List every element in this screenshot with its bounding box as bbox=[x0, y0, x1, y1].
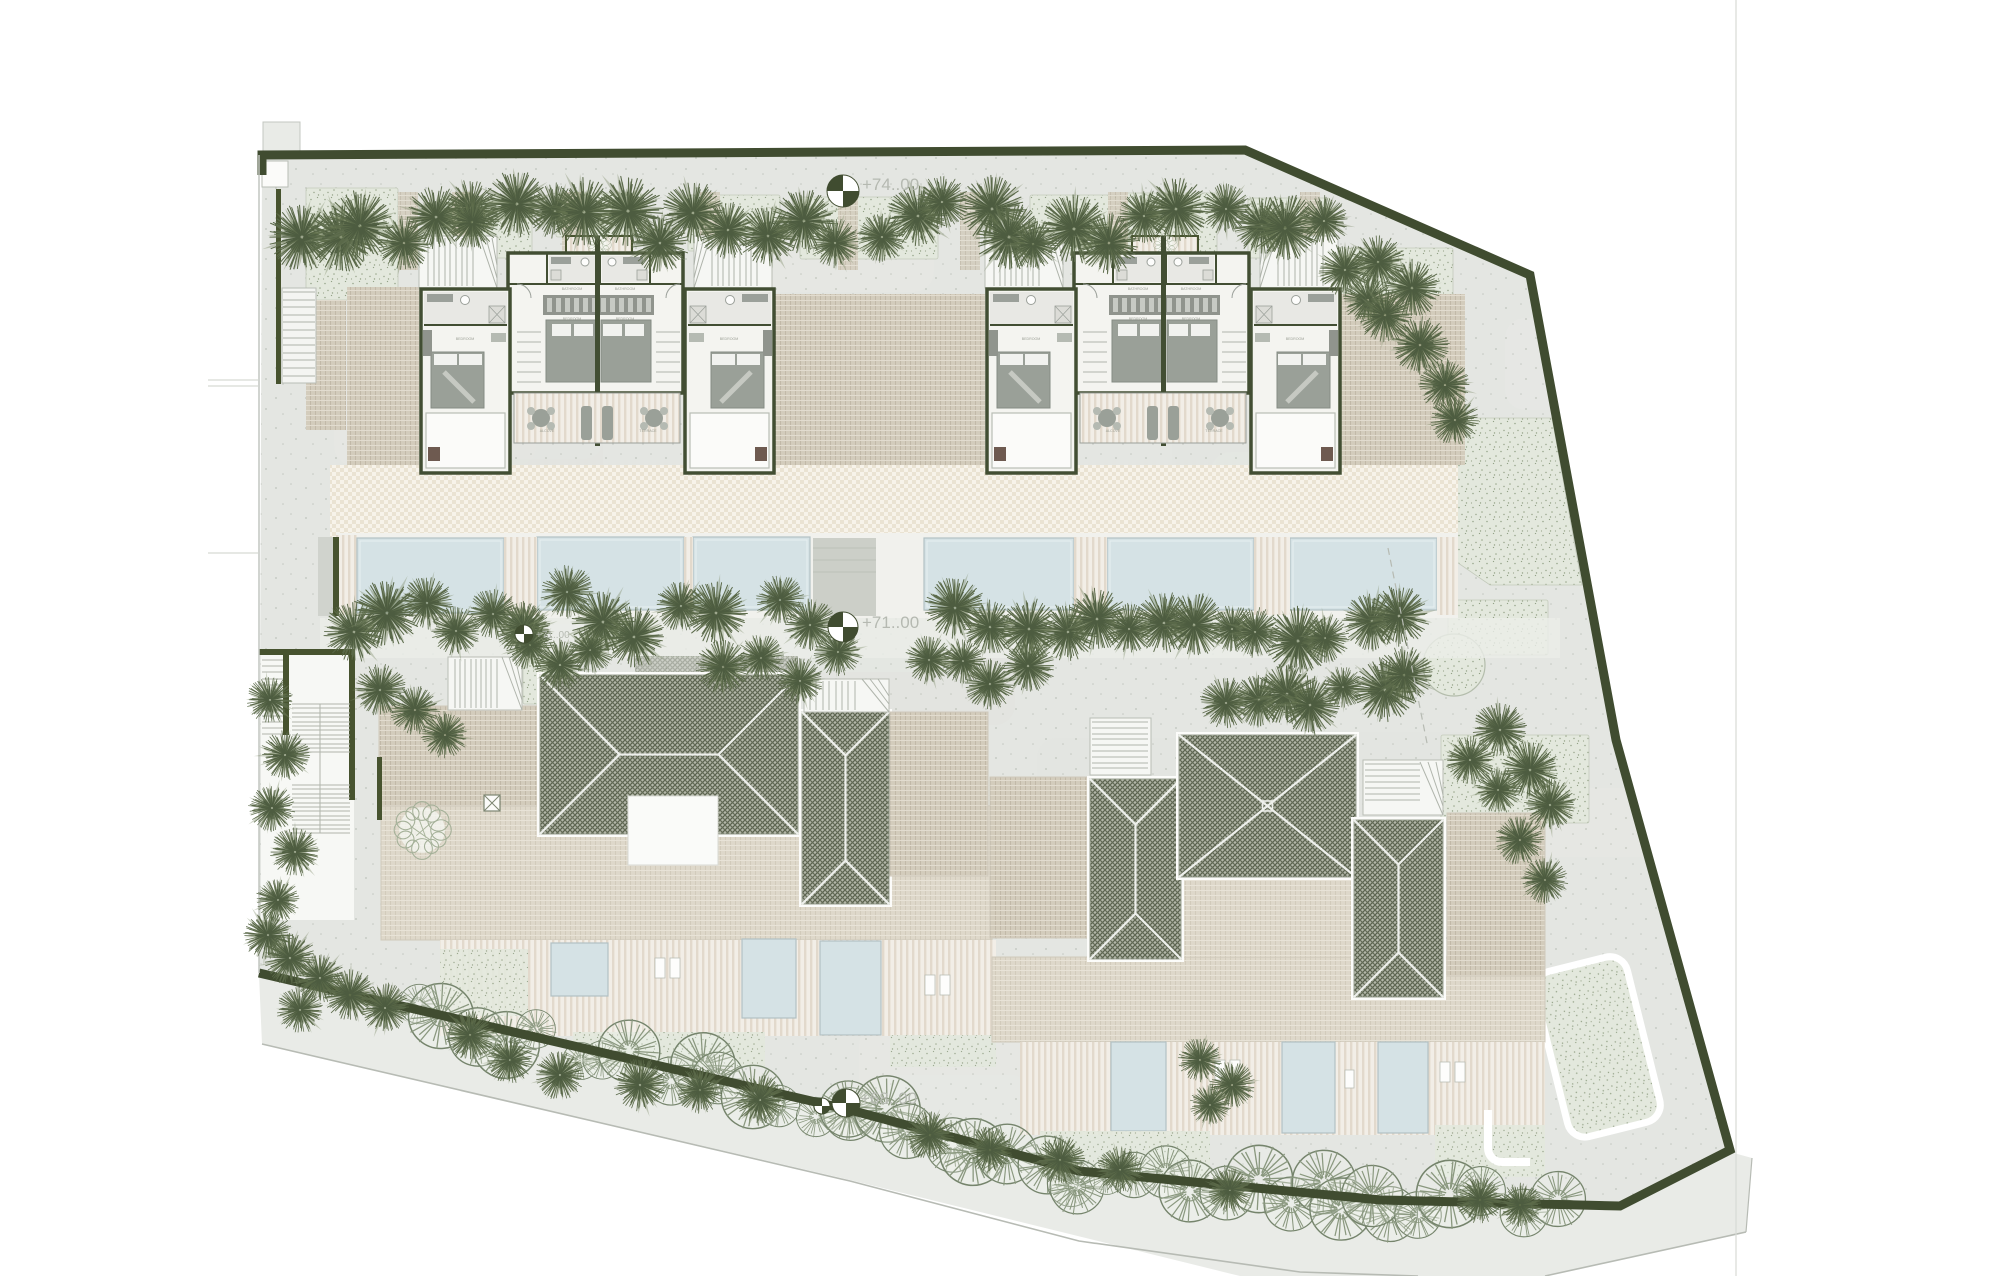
svg-text:BATHROOM: BATHROOM bbox=[1128, 287, 1149, 291]
svg-text:BEDROOM: BEDROOM bbox=[563, 317, 582, 321]
svg-text:BATHROOM: BATHROOM bbox=[562, 287, 583, 291]
svg-text:BEDROOM: BEDROOM bbox=[616, 317, 635, 321]
svg-text:ALCOVE: ALCOVE bbox=[1106, 429, 1121, 433]
svg-text:BEDROOM: BEDROOM bbox=[1129, 317, 1148, 321]
svg-text:ALCOVE: ALCOVE bbox=[540, 429, 555, 433]
svg-text:BATHROOM: BATHROOM bbox=[615, 287, 636, 291]
svg-text:TERRACE: TERRACE bbox=[639, 429, 657, 433]
svg-text:BEDROOM: BEDROOM bbox=[456, 337, 475, 341]
svg-text:+74..00: +74..00 bbox=[862, 175, 919, 194]
svg-text:BEDROOM: BEDROOM bbox=[1182, 317, 1201, 321]
svg-text:BEDROOM: BEDROOM bbox=[720, 337, 739, 341]
svg-text:+68..00: +68..00 bbox=[860, 1089, 917, 1108]
svg-text:BATHROOM: BATHROOM bbox=[1181, 287, 1202, 291]
svg-text:BEDROOM: BEDROOM bbox=[1022, 337, 1041, 341]
svg-text:TERRACE: TERRACE bbox=[1205, 429, 1223, 433]
svg-text:+71..00: +71..00 bbox=[862, 613, 919, 632]
svg-text:+71..00: +71..00 bbox=[536, 630, 570, 641]
svg-text:BEDROOM: BEDROOM bbox=[1286, 337, 1305, 341]
